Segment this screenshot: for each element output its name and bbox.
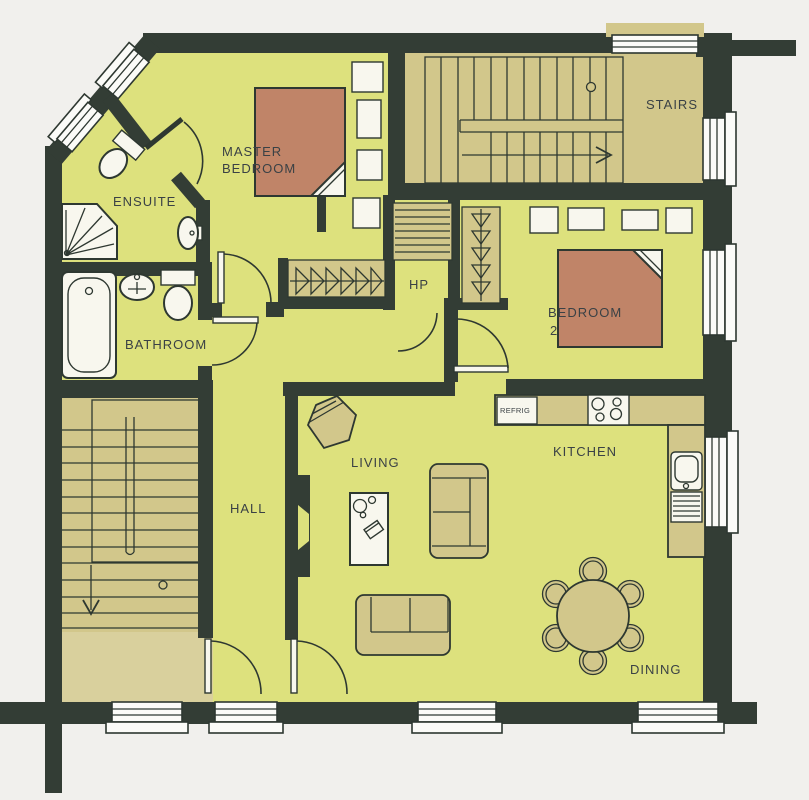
- window-bottom-living: [412, 702, 502, 733]
- refrigerator: REFRIG: [497, 397, 537, 424]
- sofa-right: [430, 464, 488, 558]
- living-label: LIVING: [351, 455, 400, 470]
- hall-label: HALL: [230, 501, 267, 516]
- master-nightstand-2: [357, 150, 382, 180]
- stairs-label: STAIRS: [646, 97, 698, 112]
- bathroom-sink: [120, 274, 154, 300]
- bedroom2-nightstand-1: [530, 207, 558, 233]
- bathroom-label: BATHROOM: [125, 337, 207, 352]
- bedroom2-label-line2: 2: [550, 323, 558, 338]
- window-bottom-dining: [632, 702, 724, 733]
- window-top-stairs: [606, 23, 704, 53]
- bedroom2-dresser-2: [622, 210, 658, 230]
- dining-label: DINING: [630, 662, 682, 677]
- master-bedroom-label-line2: BEDROOM: [222, 161, 296, 176]
- master-bedroom-label-line1: MASTER: [222, 144, 282, 159]
- stove: [588, 395, 629, 425]
- dining-table: [557, 580, 629, 652]
- kitchen-sink: [671, 452, 702, 522]
- floor-plan-drawing: REFRIG: [0, 0, 809, 800]
- lobby-floor: [62, 632, 213, 702]
- window-right-bedroom2: [703, 244, 736, 341]
- master-dresser: [352, 62, 383, 92]
- coffee-table: [350, 493, 388, 565]
- window-bottom-hall: [209, 702, 283, 733]
- bathroom-toilet: [161, 270, 195, 320]
- kitchen-counter-right: [668, 425, 705, 557]
- bedroom2-wardrobe: [462, 207, 500, 303]
- bedroom2-label-line1: BEDROOM: [548, 305, 622, 320]
- master-bed: [255, 88, 345, 196]
- floor-plan-page: REFRIG: [0, 0, 809, 800]
- ensuite-label: ENSUITE: [113, 194, 176, 209]
- kitchen-label: KITCHEN: [553, 444, 617, 459]
- master-nightstand-3: [353, 198, 380, 228]
- sofa-bottom: [356, 595, 450, 655]
- refrigerator-label: REFRIG: [500, 406, 530, 415]
- bathtub: [62, 272, 116, 378]
- bedroom2-dresser-1: [568, 208, 604, 230]
- hot-press-label: HP: [409, 277, 429, 292]
- window-bottom-lobby: [106, 702, 188, 733]
- master-wardrobe: [288, 260, 385, 297]
- hot-press-shelves: [393, 203, 452, 260]
- stairs-room-floor: [405, 53, 703, 183]
- bedroom2-nightstand-2: [666, 208, 692, 233]
- window-right-kitchen: [705, 431, 738, 533]
- window-right-stairs: [703, 112, 736, 186]
- master-nightstand-1: [357, 100, 381, 138]
- bedroom2-bed: [558, 250, 662, 347]
